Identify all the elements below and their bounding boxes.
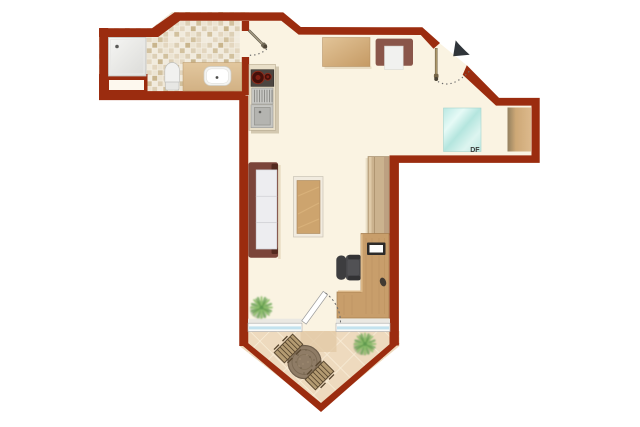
- svg-text:DF: DF: [470, 147, 480, 154]
